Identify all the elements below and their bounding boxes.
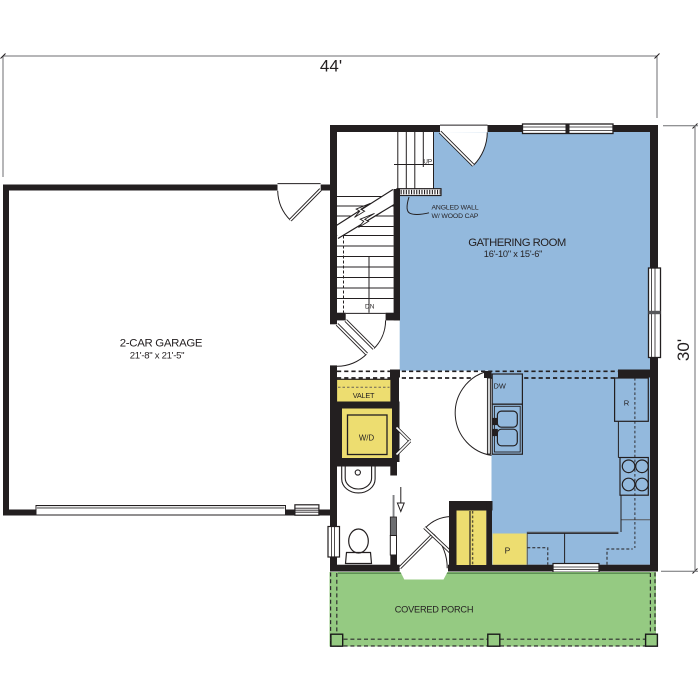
svg-text:COVERED PORCH: COVERED PORCH: [395, 605, 474, 615]
svg-text:W/ WOOD CAP: W/ WOOD CAP: [432, 213, 479, 220]
svg-text:DW: DW: [494, 381, 506, 390]
svg-text:GATHERING ROOM: GATHERING ROOM: [468, 237, 566, 249]
svg-text:DN: DN: [365, 304, 375, 311]
svg-text:21'-8" x 21'-5": 21'-8" x 21'-5": [130, 350, 185, 361]
svg-text:44': 44': [320, 57, 342, 76]
svg-text:ANGLED WALL: ANGLED WALL: [432, 204, 479, 211]
svg-text:W/D: W/D: [359, 434, 375, 443]
svg-text:30': 30': [674, 339, 693, 361]
svg-text:VALET: VALET: [353, 391, 375, 400]
svg-text:UP: UP: [423, 159, 432, 166]
svg-text:2-CAR GARAGE: 2-CAR GARAGE: [120, 338, 203, 350]
svg-text:P: P: [505, 546, 511, 556]
svg-text:R: R: [624, 399, 630, 408]
svg-text:16'-10" x 15'-6": 16'-10" x 15'-6": [484, 249, 542, 259]
